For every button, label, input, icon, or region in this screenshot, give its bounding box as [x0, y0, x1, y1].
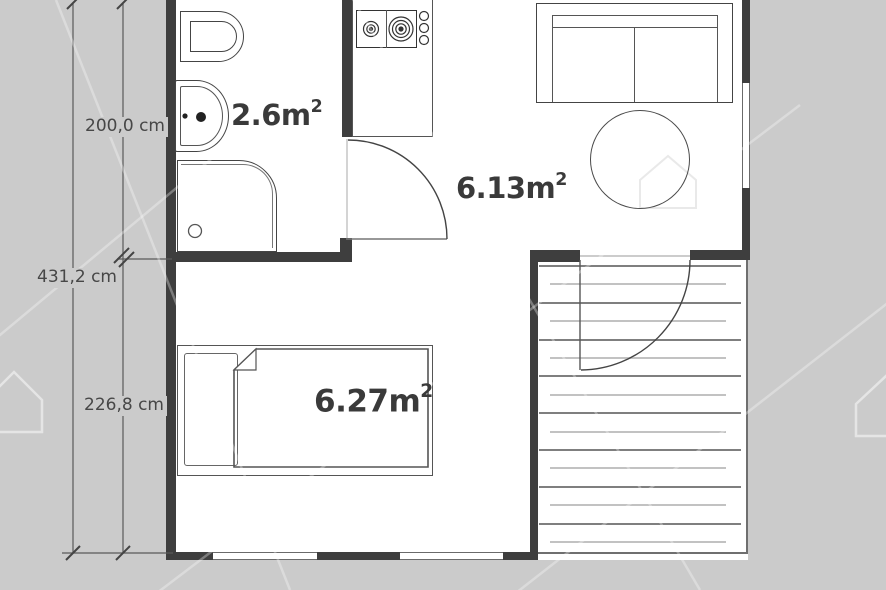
deck-plank	[539, 302, 741, 304]
deck-plank	[539, 265, 741, 267]
stove-divider	[386, 10, 387, 48]
floor-plan: 2.6m2 6.13m2 6.27m2 200,0 cm 431,2 cm 22…	[0, 0, 886, 590]
deck-plank	[539, 486, 741, 488]
deck-plank	[550, 394, 726, 396]
window-bottom-1	[213, 552, 317, 560]
wall-bathroom-bottom	[166, 252, 352, 262]
deck-plank	[539, 523, 741, 525]
deck-plank	[550, 504, 726, 506]
house-watermark-icon	[0, 372, 42, 432]
area-value-living: 6.13m	[456, 171, 555, 205]
wall-bottom-2	[317, 552, 400, 560]
wall-bottom-3	[503, 552, 538, 560]
sofa-seat-divider	[634, 27, 635, 102]
deck-plank	[550, 320, 726, 322]
house-watermark-icon	[856, 376, 886, 436]
wall-right-upper	[742, 0, 750, 83]
deck-plank	[539, 375, 741, 377]
area-label-living: 6.13m2	[456, 173, 567, 203]
deck-plank	[539, 449, 741, 451]
area-superscript: 2	[311, 97, 323, 117]
dimension-label-bedroom-side: 226,8 cm	[81, 396, 167, 416]
wall-bottom-1	[166, 552, 213, 560]
area-superscript: 2	[555, 170, 567, 190]
dimension-label-bathroom-side: 200,0 cm	[82, 117, 168, 137]
dimension-label-total-side: 431,2 cm	[34, 268, 120, 288]
round-table-icon	[590, 110, 690, 209]
area-superscript: 2	[420, 381, 432, 402]
window-right	[742, 83, 750, 188]
bed-pillow	[184, 353, 238, 466]
deck-plank	[550, 357, 726, 359]
deck	[538, 250, 748, 554]
deck-plank	[550, 431, 726, 433]
deck-plank	[539, 339, 741, 341]
deck-plank	[550, 467, 726, 469]
area-value-bathroom: 2.6m	[231, 98, 311, 132]
window-bottom-2	[400, 552, 503, 560]
area-value-bedroom: 6.27m	[314, 383, 420, 419]
toilet-bowl	[190, 21, 237, 52]
deck-plank	[550, 541, 726, 543]
area-label-bathroom: 2.6m2	[231, 100, 322, 130]
area-label-bedroom: 6.27m2	[314, 385, 433, 418]
deck-plank	[539, 412, 741, 414]
shower-tray-inner	[181, 164, 273, 248]
wall-bathroom-right	[342, 0, 352, 137]
wall-deck-top-right	[690, 250, 750, 260]
deck-plank	[550, 283, 726, 285]
wall-bedroom-deck	[530, 250, 538, 560]
